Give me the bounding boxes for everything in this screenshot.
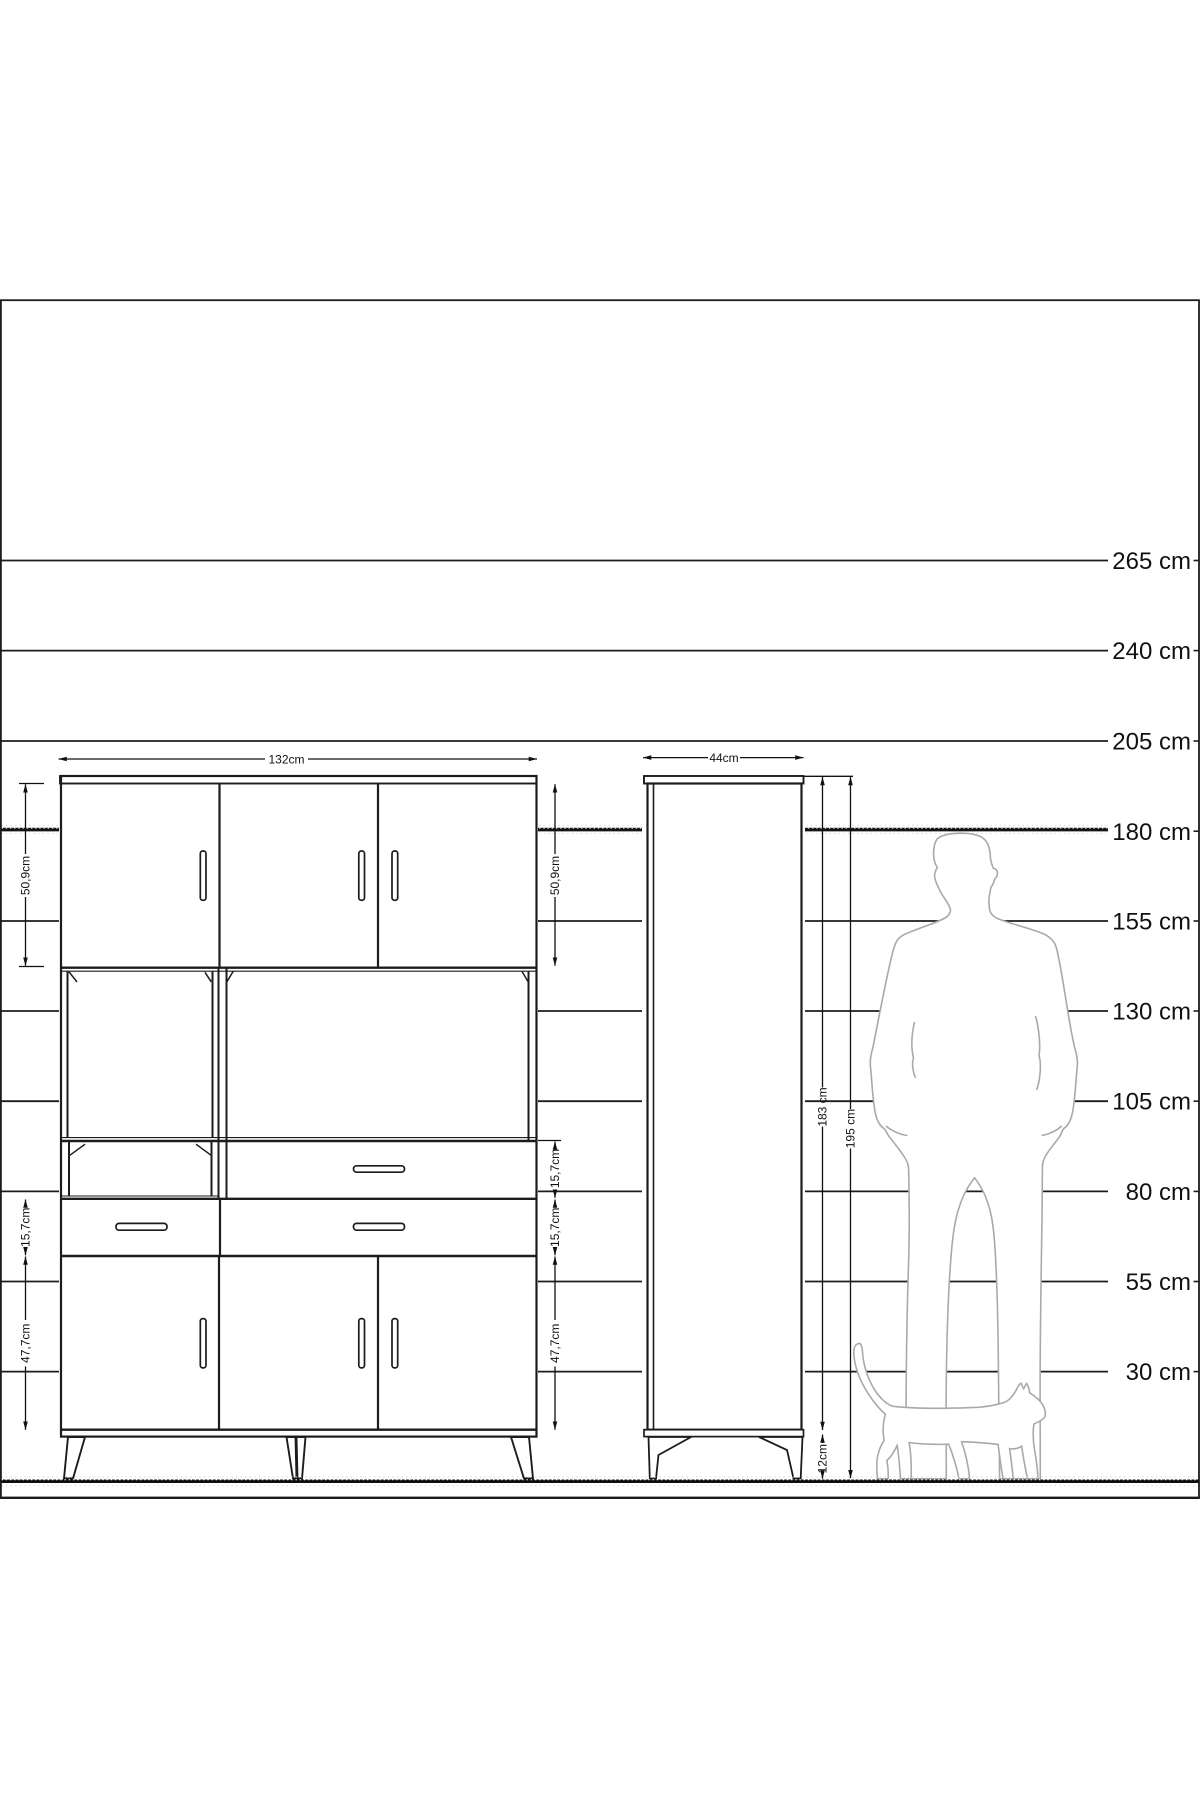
svg-text:15,7cm: 15,7cm (19, 1208, 33, 1247)
svg-text:155 cm: 155 cm (1112, 909, 1191, 936)
svg-text:105 cm: 105 cm (1112, 1089, 1191, 1116)
svg-text:15,7cm: 15,7cm (548, 1208, 562, 1247)
svg-text:50,9cm: 50,9cm (548, 856, 562, 895)
svg-text:132cm: 132cm (268, 753, 304, 767)
svg-text:55 cm: 55 cm (1126, 1269, 1191, 1296)
svg-text:44cm: 44cm (709, 751, 738, 765)
svg-text:240 cm: 240 cm (1112, 638, 1191, 665)
svg-text:183 cm: 183 cm (816, 1087, 830, 1126)
svg-text:15,7cm: 15,7cm (548, 1149, 562, 1188)
svg-text:180 cm: 180 cm (1112, 819, 1191, 846)
svg-text:50,9cm: 50,9cm (19, 856, 33, 895)
svg-text:195 cm: 195 cm (844, 1109, 858, 1148)
svg-text:30 cm: 30 cm (1126, 1359, 1191, 1386)
svg-text:80 cm: 80 cm (1126, 1179, 1191, 1206)
svg-text:47,7cm: 47,7cm (19, 1324, 33, 1363)
svg-text:130 cm: 130 cm (1112, 999, 1191, 1026)
svg-text:47,7cm: 47,7cm (548, 1324, 562, 1363)
svg-text:205 cm: 205 cm (1112, 729, 1191, 756)
svg-text:265 cm: 265 cm (1112, 548, 1191, 575)
svg-text:12cm: 12cm (816, 1444, 830, 1473)
